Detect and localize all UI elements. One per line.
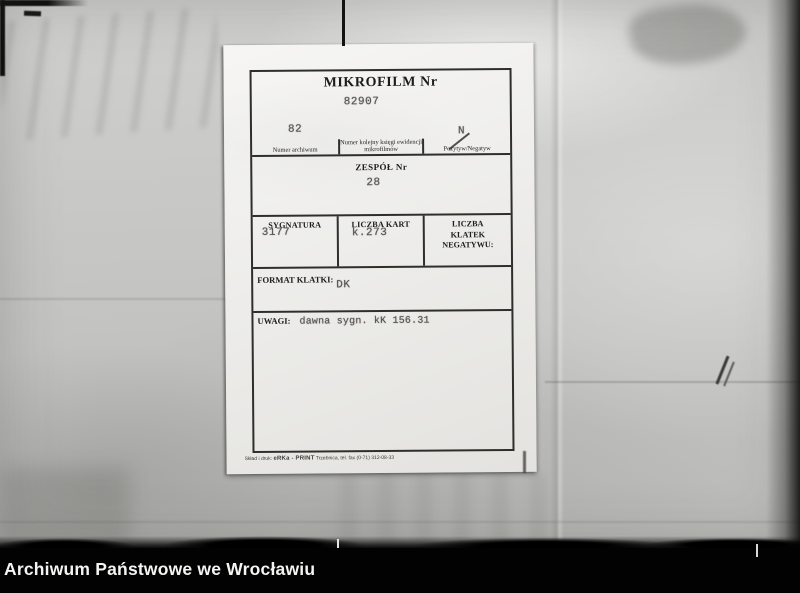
print-credit-prefix: Skład i druk: bbox=[245, 456, 273, 462]
film-registration-tick-center bbox=[342, 0, 345, 46]
ksiega-label: Numer kolejny księgi ewidencji mikrofilm… bbox=[338, 138, 424, 154]
archive-labels-strip: Numer archiwum Numer kolejny księgi ewid… bbox=[252, 135, 510, 155]
liczba-kart-cell: LICZBA KART k.273 bbox=[339, 216, 425, 267]
microfilm-number-value: 82907 bbox=[344, 96, 380, 108]
film-registration-mark-left bbox=[0, 0, 5, 76]
paper-fold-line bbox=[550, 0, 564, 548]
film-scratch-mark bbox=[723, 362, 735, 387]
zespol-row: ZESPÓŁ Nr 28 bbox=[252, 155, 510, 217]
film-streaks-artifact bbox=[0, 6, 224, 141]
uwagi-row: UWAGI: dawna sygn. kK 156.31 bbox=[253, 311, 512, 449]
card-edge-shadow-tick bbox=[523, 451, 526, 473]
microfilm-index-card: MIKROFILM Nr 82907 82 N Numer archiwum N… bbox=[223, 43, 536, 474]
card-title: MIKROFILM Nr bbox=[252, 74, 510, 92]
film-white-tick bbox=[337, 539, 339, 548]
pozytyw-negatyw-label: Pozytyw/Negatyw bbox=[424, 145, 510, 154]
liczba-klatek-cell: LICZBA KLATEK NEGATYWU: bbox=[425, 215, 511, 266]
sygnatura-cell: SYGNATURA 3177 bbox=[253, 216, 339, 267]
film-scratch-mark bbox=[715, 356, 729, 385]
details-row: SYGNATURA 3177 LICZBA KART k.273 LICZBA … bbox=[253, 215, 511, 269]
numer-archiwum-label: Numer archiwum bbox=[252, 146, 338, 155]
film-photo-background: MIKROFILM Nr 82907 82 N Numer archiwum N… bbox=[0, 0, 800, 548]
print-credit-suffix: Trzebnica, tel. fax (0-71) 312-08-33 bbox=[316, 455, 394, 462]
form-border-box: MIKROFILM Nr 82907 82 N Numer archiwum N… bbox=[250, 68, 515, 453]
archive-name-caption: Archiwum Państwowe we Wrocławiu bbox=[4, 559, 315, 580]
liczba-kart-value: k.273 bbox=[352, 227, 388, 239]
caption-bar: Archiwum Państwowe we Wrocławiu bbox=[0, 548, 800, 593]
numer-archiwum-value: 82 bbox=[288, 124, 302, 136]
print-credit-brand: eRKa - PRINT bbox=[273, 456, 314, 462]
uwagi-value: dawna sygn. kK 156.31 bbox=[299, 316, 429, 328]
format-klatki-label: FORMAT KLATKI: bbox=[257, 274, 333, 285]
film-white-tick bbox=[756, 544, 758, 557]
film-registration-mark-top bbox=[0, 0, 88, 6]
paper-crease-bottom bbox=[0, 521, 800, 523]
liczba-klatek-label: LICZBA KLATEK NEGATYWU: bbox=[435, 219, 501, 251]
film-edge-shadow bbox=[766, 0, 800, 548]
header-row: MIKROFILM Nr 82907 82 N Numer archiwum N… bbox=[252, 70, 511, 157]
scanned-microfilm-card-page: MIKROFILM Nr 82907 82 N Numer archiwum N… bbox=[0, 0, 800, 593]
zespol-value: 28 bbox=[366, 177, 380, 189]
paper-crease-left bbox=[0, 298, 230, 300]
zespol-label: ZESPÓŁ Nr bbox=[252, 161, 510, 173]
film-registration-dash bbox=[24, 11, 41, 17]
format-klatki-value: DK bbox=[336, 279, 350, 291]
paper-crease-right bbox=[545, 381, 800, 383]
sygnatura-value: 3177 bbox=[262, 227, 290, 239]
film-smudge-artifact bbox=[626, 0, 749, 72]
print-credit-line: Skład i druk: eRKa - PRINT Trzebnica, te… bbox=[245, 454, 465, 462]
format-klatki-row: FORMAT KLATKI: DK bbox=[253, 267, 511, 313]
film-streaks-below-card bbox=[340, 474, 565, 544]
uwagi-label: UWAGI: bbox=[257, 316, 290, 326]
